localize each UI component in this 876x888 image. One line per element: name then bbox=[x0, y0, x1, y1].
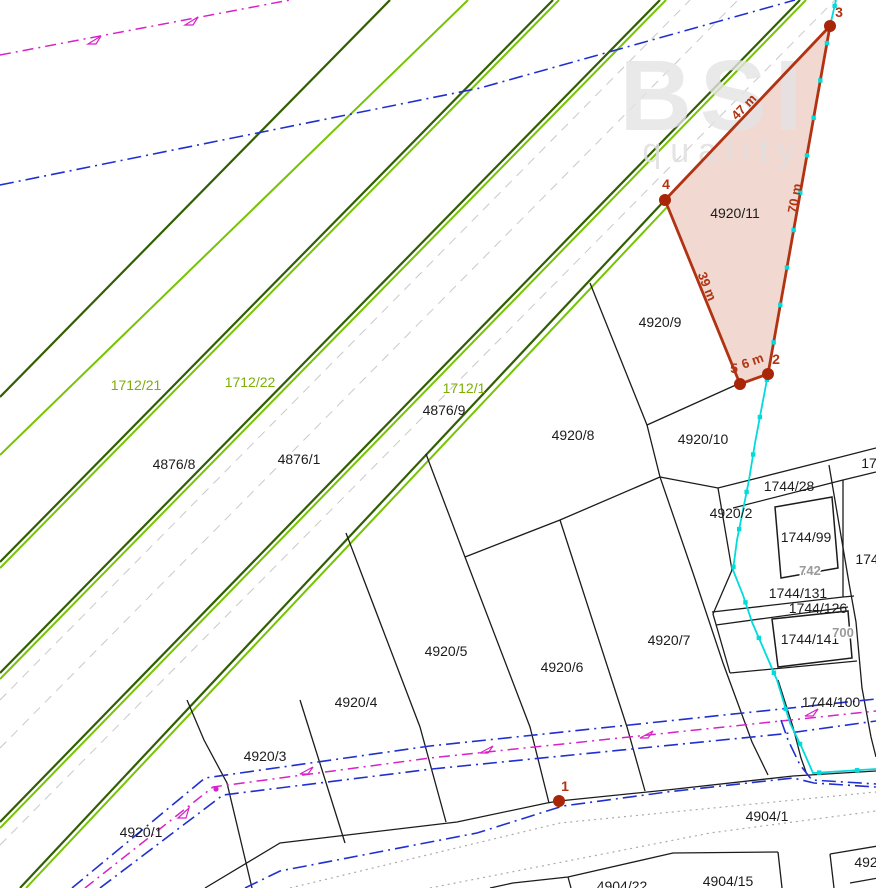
parcel-label: 1744/100 bbox=[802, 694, 861, 710]
cadastral-map-canvas[interactable]: BSI quality 1712/211712/221712/14876/848… bbox=[0, 0, 876, 888]
survey-point-2[interactable] bbox=[762, 368, 774, 380]
parcel-label: 1744/28 bbox=[764, 478, 815, 494]
cyan-survey-dot bbox=[731, 565, 735, 569]
parcel-label: 17 bbox=[861, 455, 876, 471]
cyan-survey-dot bbox=[785, 265, 789, 269]
cyan-survey-dot bbox=[744, 490, 748, 494]
parcel-label: 492 bbox=[854, 854, 876, 870]
cyan-survey-dot bbox=[778, 303, 782, 307]
parcel-label: 4876/8 bbox=[153, 456, 196, 472]
parcel-label: 4920/11 bbox=[710, 205, 760, 221]
cyan-survey-dot bbox=[818, 78, 822, 82]
cyan-survey-dot bbox=[811, 116, 815, 120]
survey-point-1[interactable] bbox=[553, 795, 565, 807]
map-viewport[interactable]: BSI quality 1712/211712/221712/14876/848… bbox=[0, 0, 876, 888]
cyan-survey-dot bbox=[771, 340, 775, 344]
parcel-label: 1712/22 bbox=[225, 374, 276, 390]
parcel-label: 1744/99 bbox=[781, 529, 832, 545]
parcel-label: 4920/8 bbox=[552, 427, 595, 443]
cyan-survey-dot bbox=[751, 452, 755, 456]
cyan-survey-dot bbox=[791, 228, 795, 232]
survey-point-3[interactable] bbox=[824, 20, 836, 32]
parcel-label: 4920/7 bbox=[648, 632, 691, 648]
parcel-label: 4904/15 bbox=[703, 873, 754, 888]
cyan-survey-dot bbox=[743, 600, 747, 604]
parcel-label: 4920/10 bbox=[678, 431, 729, 447]
parcel-label: 4920/2 bbox=[710, 505, 753, 521]
parcel-label: 4920/9 bbox=[639, 314, 682, 330]
cyan-survey-dot bbox=[772, 671, 776, 675]
parcel-label: 174 bbox=[855, 551, 876, 567]
survey-point-5[interactable] bbox=[734, 378, 746, 390]
cyan-survey-dot bbox=[855, 768, 859, 772]
survey-point-number: 5 bbox=[730, 360, 738, 376]
parcel-label: 4920/1 bbox=[120, 824, 163, 840]
parcel-label: 700 bbox=[832, 625, 854, 640]
magenta-bend-node bbox=[213, 786, 218, 791]
survey-point-number: 4 bbox=[662, 176, 670, 192]
survey-point-number: 1 bbox=[561, 778, 569, 794]
parcel-label: 1744/131 bbox=[769, 585, 828, 601]
parcel-label: 4876/1 bbox=[278, 451, 321, 467]
parcel-label: 4920/5 bbox=[425, 643, 468, 659]
survey-point-4[interactable] bbox=[659, 194, 671, 206]
cyan-survey-dot bbox=[805, 153, 809, 157]
cyan-survey-dot bbox=[737, 527, 741, 531]
watermark: BSI quality bbox=[620, 40, 811, 170]
parcel-label: 1712/1 bbox=[443, 380, 486, 396]
parcel-label: 742 bbox=[799, 563, 821, 578]
parcel-label: 1744/141 bbox=[781, 631, 840, 647]
parcel-label: 1744/126 bbox=[789, 600, 848, 616]
parcel-label: 4904/1 bbox=[746, 808, 789, 824]
cyan-survey-dot bbox=[798, 742, 802, 746]
cyan-survey-dot bbox=[757, 636, 761, 640]
cyan-survey-dot bbox=[784, 707, 788, 711]
cyan-survey-dot bbox=[817, 770, 821, 774]
cyan-survey-dot bbox=[758, 415, 762, 419]
survey-point-number: 2 bbox=[772, 351, 780, 367]
parcel-label: 4904/22 bbox=[597, 878, 648, 888]
survey-point-number: 3 bbox=[835, 4, 843, 20]
parcel-label: 4876/9 bbox=[423, 402, 466, 418]
parcel-label: 4920/6 bbox=[541, 659, 584, 675]
parcel-label: 4920/3 bbox=[244, 748, 287, 764]
cyan-survey-dot bbox=[825, 41, 829, 45]
parcel-label: 1712/21 bbox=[111, 377, 162, 393]
parcel-label: 4920/4 bbox=[335, 694, 378, 710]
